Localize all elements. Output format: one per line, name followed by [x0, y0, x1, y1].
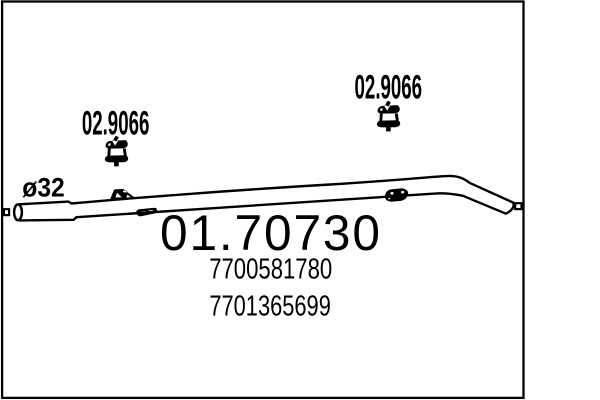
svg-text:7701365699: 7701365699	[209, 290, 331, 322]
svg-text:02.9066: 02.9066	[82, 104, 150, 142]
svg-text:ø32: ø32	[22, 173, 65, 203]
svg-text:02.9066: 02.9066	[355, 69, 423, 107]
svg-text:7700581780: 7700581780	[209, 254, 332, 286]
svg-text:01.70730: 01.70730	[160, 205, 380, 261]
